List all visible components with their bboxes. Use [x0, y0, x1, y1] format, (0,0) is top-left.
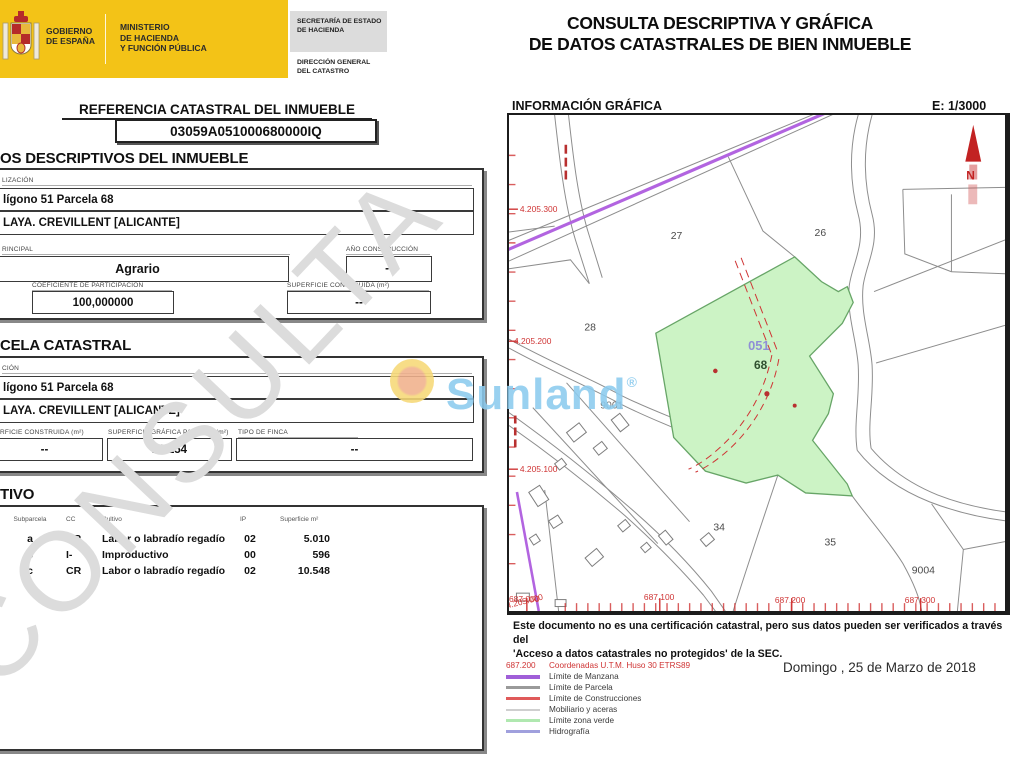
coeficiente-label: COEFICIENTE DE PARTICIPACIÓN — [32, 282, 172, 291]
parcel-28: 28 — [584, 322, 596, 333]
legend-swatch-construcciones — [506, 697, 540, 700]
referencia-value: 03059A051000680000IQ — [115, 119, 377, 143]
parcel-27: 27 — [671, 231, 683, 242]
legend-swatch-zona-verde — [506, 719, 540, 722]
highlighted-parcel-green — [656, 257, 853, 496]
coeficiente-value: 100,000000 — [32, 291, 174, 314]
col-superficie: Superficie m² — [280, 516, 318, 523]
legend-item: Límite de Manzana — [506, 671, 690, 682]
secretaria-label: SECRETARÍA DE ESTADO DE HACIENDA — [290, 11, 387, 52]
parcel-35: 35 — [824, 538, 836, 549]
legend-swatch-manzana — [506, 675, 540, 679]
legend-coord-label: Coordenadas U.T.M. Huso 30 ETRS89 — [549, 661, 690, 670]
coord-left-3: 4.205.100 — [520, 464, 558, 474]
coord-left-2: 4.205.200 — [514, 336, 552, 346]
coord-bottom-4: 687.300 — [905, 595, 936, 605]
spain-coat-of-arms-icon — [2, 7, 40, 78]
cell: 02 — [238, 533, 262, 545]
legend-item: Mobiliario y aceras — [506, 704, 690, 715]
legend-swatch-parcela — [506, 686, 540, 689]
government-banner: GOBIERNO DE ESPAÑA MINISTERIO DE HACIEND… — [0, 0, 288, 78]
parcela-heading: CELA CATASTRAL — [0, 337, 131, 354]
north-label: N — [966, 168, 975, 182]
disclaimer: Este documento no es una certificación c… — [513, 620, 1015, 661]
cell: 5.010 — [266, 533, 330, 545]
document-date: Domingo , 25 de Marzo de 2018 — [783, 660, 976, 675]
uso-label: RINCIPAL — [2, 246, 290, 255]
direccion-label: DIRECCIÓN GENERAL DEL CATASTRO — [290, 58, 387, 76]
parcela-supc-label: RFICIE CONSTRUIDA (m²) — [0, 429, 100, 437]
cultivo-heading: TIVO — [0, 486, 34, 503]
highlight-code-label: 051 — [748, 338, 769, 353]
sun-icon — [390, 359, 434, 403]
document-page: GOBIERNO DE ESPAÑA MINISTERIO DE HACIEND… — [0, 0, 1024, 768]
referencia-heading: REFERENCIA CATASTRAL DEL INMUEBLE — [62, 102, 372, 120]
cell: 10.548 — [266, 565, 330, 577]
cell: 596 — [266, 549, 330, 561]
sunland-logo-text: Sunland® — [446, 356, 638, 421]
legend-item: Límite de Parcela — [506, 682, 690, 693]
north-arrow-icon: N — [965, 125, 981, 204]
coord-bottom-3: 687.200 — [775, 595, 806, 605]
coord-bottom-2: 687.100 — [644, 592, 675, 602]
coord-left-1: 4.205.300 — [520, 204, 558, 214]
registered-mark: ® — [627, 374, 638, 390]
page-title: CONSULTA DESCRIPTIVA Y GRÁFICA DE DATOS … — [505, 13, 935, 54]
legend-item: Hidrografía — [506, 726, 690, 737]
datos-heading: OS DESCRIPTIVOS DEL INMUEBLE — [0, 150, 248, 167]
col-ip: IP — [240, 516, 246, 523]
legend-swatch-mobiliario — [506, 709, 540, 711]
banner-divider — [105, 14, 106, 64]
map-legend: 687.200 Coordenadas U.T.M. Huso 30 ETRS8… — [506, 660, 690, 737]
ministerio-label: MINISTERIO DE HACIENDA Y FUNCIÓN PÚBLICA — [120, 22, 207, 78]
cell: 02 — [238, 565, 262, 577]
uso-value: Agrario — [0, 256, 289, 282]
highlight-parcel-label: 68 — [754, 358, 768, 372]
parcel-9004: 9004 — [912, 565, 935, 576]
legend-coordinates: 687.200 Coordenadas U.T.M. Huso 30 ETRS8… — [506, 660, 690, 671]
tipo-finca-value: -- — [236, 438, 473, 461]
legend-item: Límite de Construcciones — [506, 693, 690, 704]
map-scale: E: 1/3000 — [932, 99, 986, 113]
legend-item: Límite zona verde — [506, 715, 690, 726]
legend-coord-sample: 687.200 — [506, 661, 540, 670]
cell: 00 — [238, 549, 262, 561]
parcel-26: 26 — [815, 228, 827, 239]
map-heading: INFORMACIÓN GRÁFICA — [512, 99, 662, 113]
legend-swatch-hidrografia — [506, 730, 540, 733]
sunland-watermark: Sunland® — [390, 356, 650, 412]
gobierno-label: GOBIERNO DE ESPAÑA — [46, 26, 95, 78]
parcel-34: 34 — [713, 523, 725, 534]
